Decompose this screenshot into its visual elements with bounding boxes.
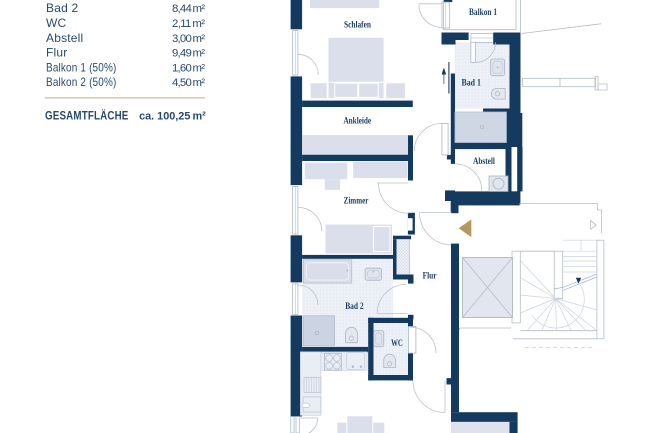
svg-text:Balkon 2 (50%): Balkon 2 (50%) [46, 75, 117, 89]
svg-text:8,44 m²: 8,44 m² [172, 3, 205, 15]
svg-text:Zimmer: Zimmer [344, 195, 369, 205]
svg-text:Bad 2: Bad 2 [46, 1, 78, 15]
svg-text:WC: WC [391, 338, 403, 348]
svg-text:2,11 m²: 2,11 m² [172, 18, 205, 30]
svg-text:Bad 1: Bad 1 [462, 77, 482, 87]
svg-text:Schlafen: Schlafen [344, 19, 371, 29]
svg-text:Flur: Flur [423, 271, 437, 281]
svg-text:Flur: Flur [46, 46, 67, 60]
svg-text:Bad 2: Bad 2 [345, 301, 364, 311]
svg-text:1,60 m²: 1,60 m² [172, 62, 205, 74]
svg-text:GESAMTFLÄCHE: GESAMTFLÄCHE [45, 108, 129, 123]
svg-text:Balkon 1: Balkon 1 [469, 7, 497, 17]
svg-text:Abstell: Abstell [473, 156, 495, 166]
svg-text:4,50 m²: 4,50 m² [172, 77, 205, 89]
svg-text:Balkon 1 (50%): Balkon 1 (50%) [46, 60, 117, 74]
svg-text:WC: WC [46, 16, 67, 30]
svg-text:3,00 m²: 3,00 m² [172, 33, 205, 45]
svg-text:Ankleide: Ankleide [343, 116, 371, 126]
svg-text:Abstell: Abstell [46, 31, 83, 45]
svg-text:9,49 m²: 9,49 m² [172, 48, 205, 60]
svg-text:ca. 100,25 m²: ca. 100,25 m² [139, 111, 206, 123]
